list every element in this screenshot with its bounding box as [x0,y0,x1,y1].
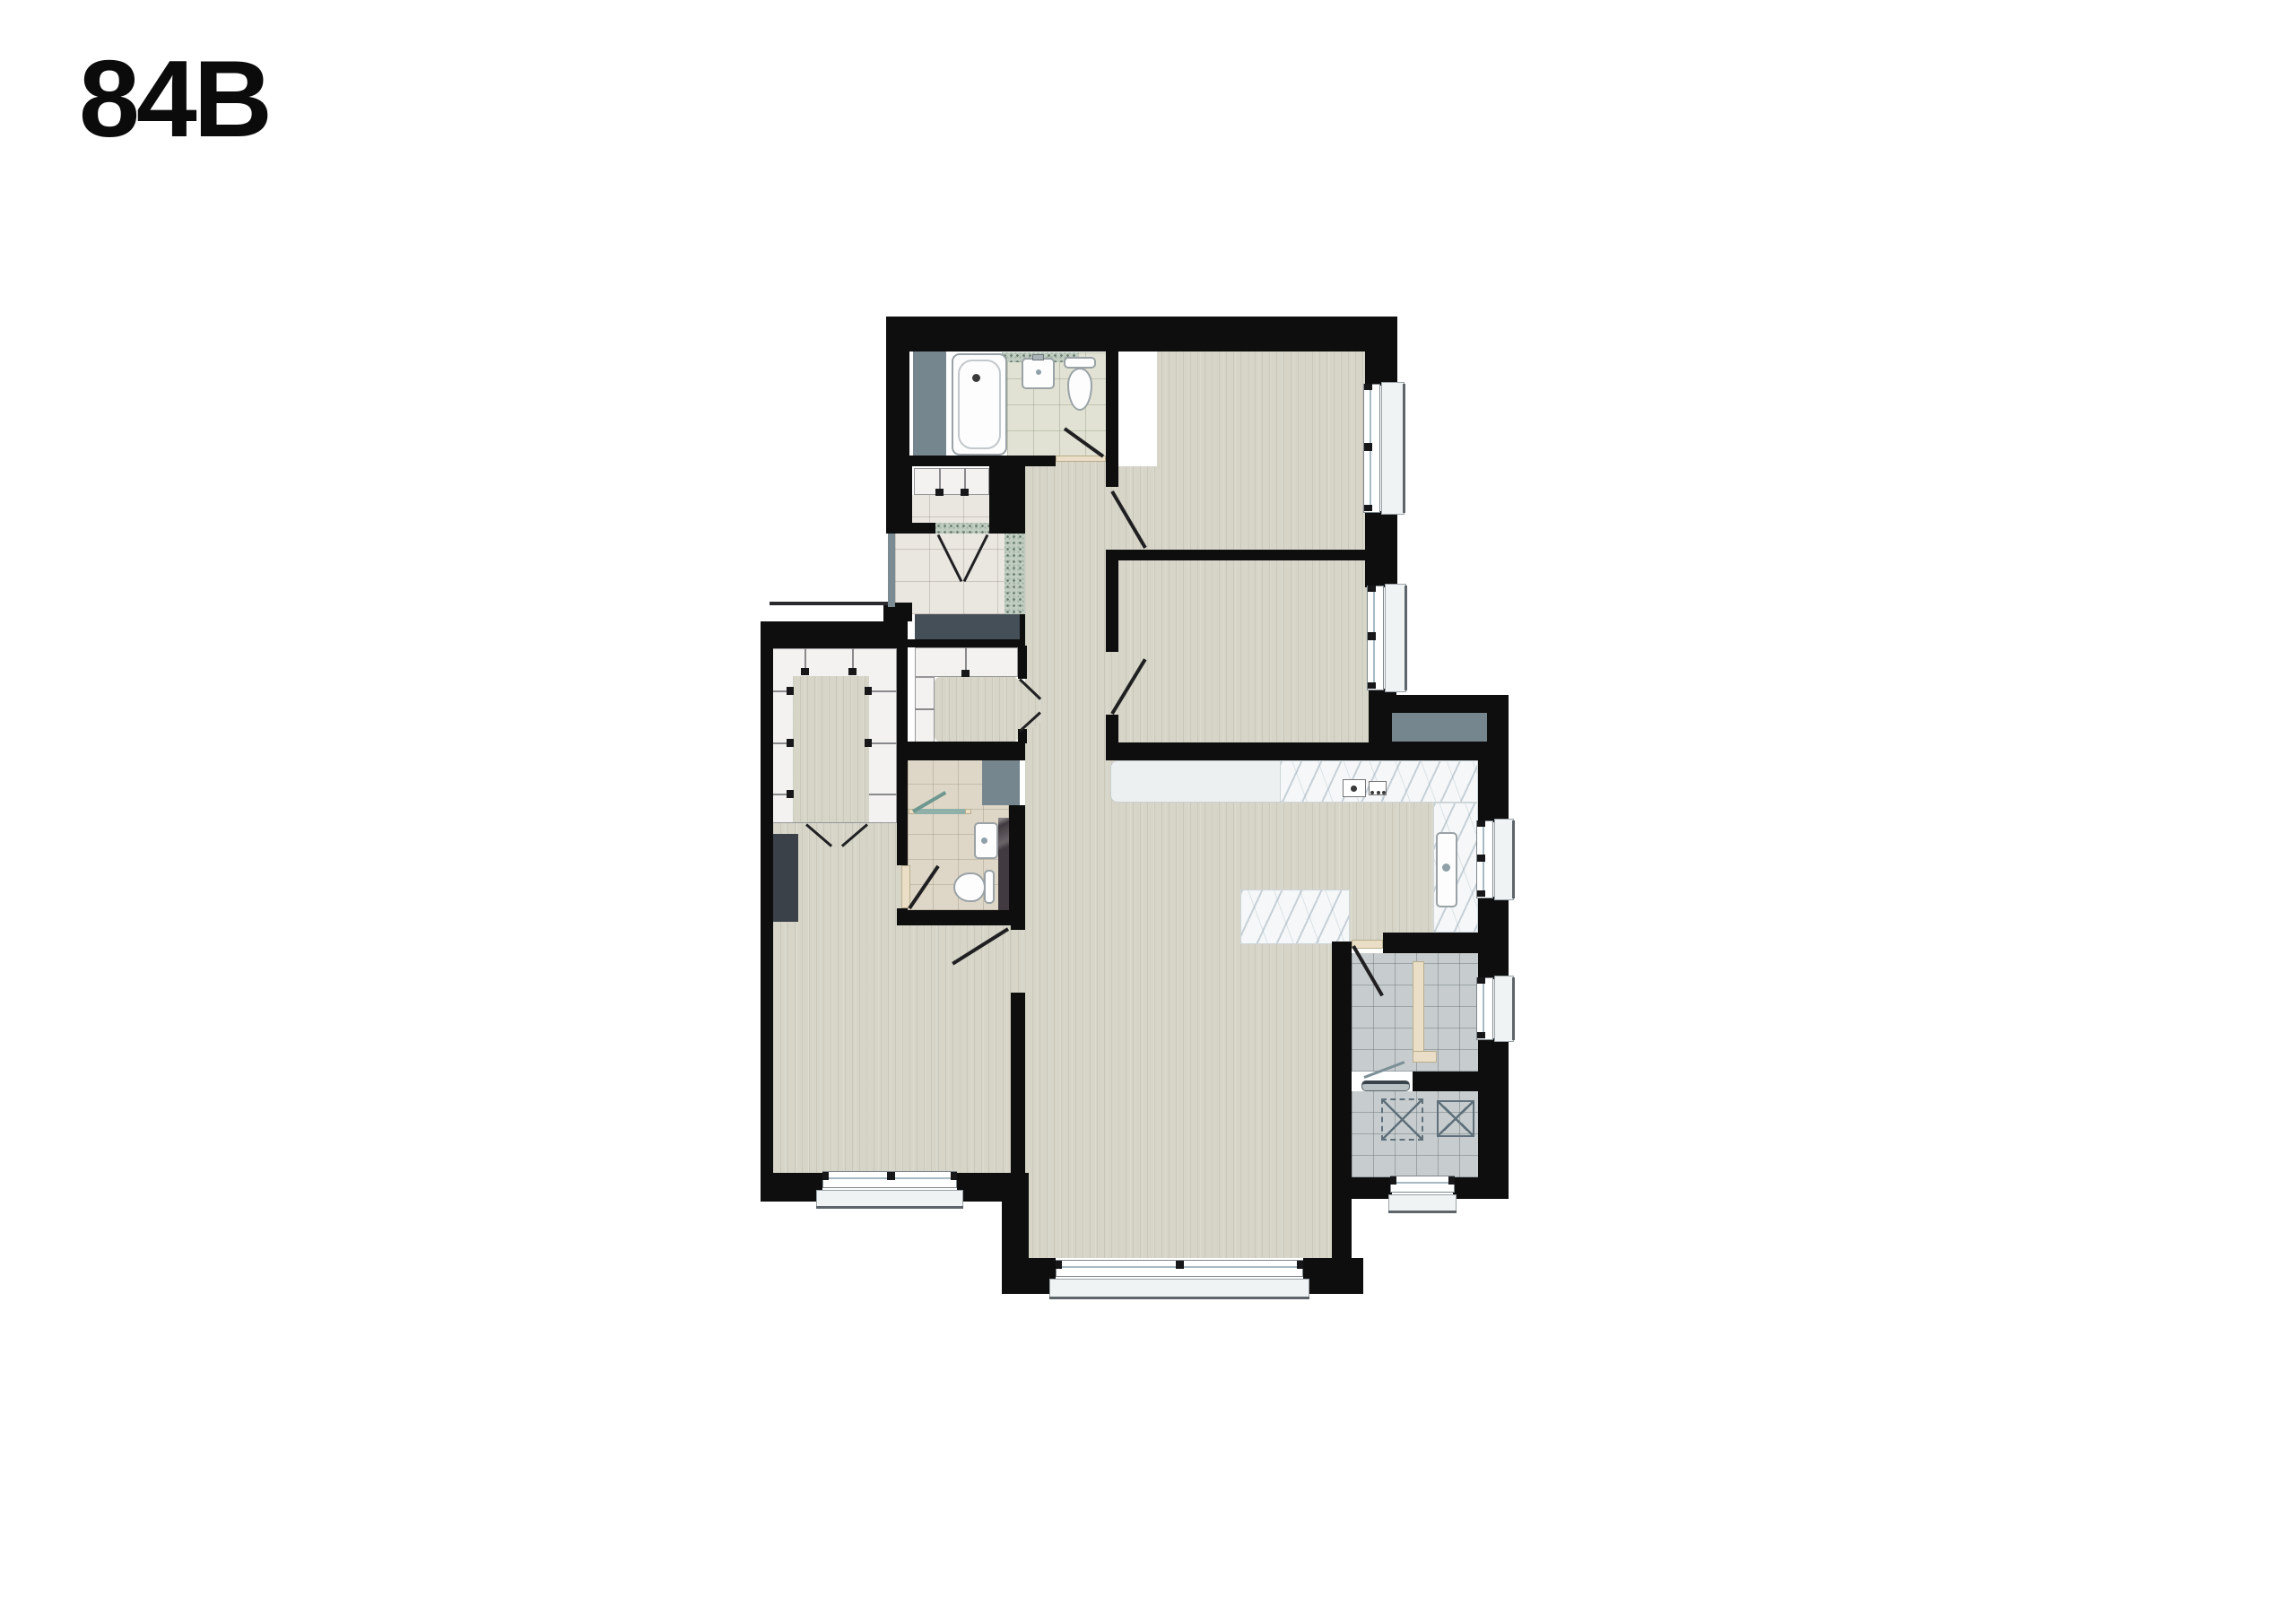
wall [1011,993,1025,1173]
laundry-sink [1361,1081,1410,1091]
wall [1106,350,1118,487]
window [1390,1176,1455,1193]
shower-glass-cap [965,809,971,814]
walk-in-closet-2-shelf [915,677,935,743]
floor-living-room [1025,760,1332,1258]
wall [1413,1072,1478,1091]
sink-faucet [1032,354,1044,360]
wall [761,1173,822,1202]
wall [897,910,1011,925]
shelf-divider [869,794,897,795]
bathtub-drain [972,374,980,382]
window-tick [1477,977,1485,984]
hanger-rod-tick [865,687,872,695]
hanger-rod-tick [865,739,872,747]
window-tick [1390,1176,1396,1185]
vanity-counter [998,818,1009,910]
wall [1478,1038,1509,1199]
wall [1365,511,1397,587]
hanger-rod-tick [787,739,794,747]
window-tick [1297,1261,1303,1269]
shelf-divider [869,742,897,744]
hanger-rod-tick [801,668,809,675]
basin-drain [981,838,987,844]
mosaic-threshold [935,523,989,534]
wall [1106,550,1365,560]
wall [1478,897,1509,979]
foyer-closet-shelf [914,468,989,495]
window-outer-frame [1388,1211,1457,1213]
wall [761,621,773,1202]
window-sill [1385,584,1406,692]
floor-door-opening [1011,930,1025,993]
kitchen-island [1240,890,1350,944]
wall [1002,1173,1029,1294]
window-tick [1176,1261,1184,1269]
wall [989,466,1025,534]
wall [1018,646,1027,679]
window-outer-frame [1405,586,1407,690]
hanger-rod-tick [787,687,794,695]
wall [908,742,1025,760]
window-sill [1494,976,1514,1042]
bathtub-inner [958,360,1001,449]
window-sill [1381,382,1405,515]
burner-dot [1377,791,1380,794]
wardrobe [771,834,798,922]
shower-partition [1413,961,1424,1063]
hanger-rod-tick [848,668,857,675]
window-tick [1368,632,1376,640]
sink-drain [1036,369,1041,375]
closet-bedroom-1 [1118,352,1157,466]
window-tick [1477,1032,1485,1038]
wall [1011,910,1025,930]
wall [1383,933,1478,953]
window-tick [1477,820,1485,827]
wall [1352,1177,1392,1199]
window-sill [1049,1279,1309,1298]
burner-dot [1370,791,1374,794]
window-outer-frame [1049,1297,1309,1299]
shelf-divider [915,708,935,710]
window-glass [1483,981,1484,1037]
window-outer-frame [816,1206,963,1209]
wall [1478,760,1509,822]
hanger-rod-tick [935,489,944,496]
floor-plan [0,0,2296,1623]
door-jamb [901,865,910,908]
window-tick [1448,1176,1455,1185]
window-sill [1388,1194,1457,1212]
dryer-future [1381,1098,1423,1141]
washer [1437,1100,1474,1137]
shelf-divider [869,690,897,692]
window-sill [1494,819,1514,900]
wall [886,317,1397,352]
wall [1453,1177,1509,1199]
wall [1106,550,1118,652]
wall [957,1173,1002,1202]
window-tick [1368,586,1376,592]
window-tick [887,1172,895,1180]
burner-dot [1382,791,1386,794]
stove-burner [1351,785,1357,792]
window-tick [1056,1261,1062,1269]
mosaic-strip [1004,534,1025,614]
wall [908,456,1056,466]
kitchen-counter [1110,760,1283,803]
wall [888,456,912,534]
window [1476,977,1493,1040]
kitchen-sink-drain [1442,864,1450,872]
shower-partition [1413,1051,1437,1063]
wall [761,621,908,648]
shaft [913,350,946,456]
entry-door [888,534,895,607]
window-tick [1364,505,1372,511]
floor-plan-page: 84B [0,0,2296,1623]
window-outer-frame [1512,977,1515,1040]
wall [1009,805,1025,910]
window-sill [816,1190,963,1208]
window-tick [951,1172,957,1180]
hanger-rod-tick [787,790,794,798]
wall [908,639,1025,647]
wall [1106,742,1369,760]
window-outer-frame [1403,384,1405,513]
corridor-wall-line [770,602,888,605]
shaft [915,614,1020,640]
wall [912,523,935,534]
shaft [1392,713,1487,742]
window-tick [1364,384,1372,390]
window-tick [822,1172,829,1180]
window-tick [1477,855,1485,862]
wall [1365,352,1397,386]
floor-bedroom-2 [1118,560,1369,742]
window-tick [1477,890,1485,897]
hanger-rod-tick [961,670,970,677]
window-outer-frame [1512,820,1515,898]
wall [1332,942,1352,1294]
window-glass [1394,1182,1451,1184]
hanger-rod-tick [961,489,969,496]
door-threshold [1056,456,1106,462]
walk-in-closet-1-floor [793,676,869,822]
shaft [982,755,1020,805]
window-tick [1364,443,1372,451]
toilet-bowl [953,872,986,902]
window-tick [1368,682,1376,689]
wall [897,621,908,865]
